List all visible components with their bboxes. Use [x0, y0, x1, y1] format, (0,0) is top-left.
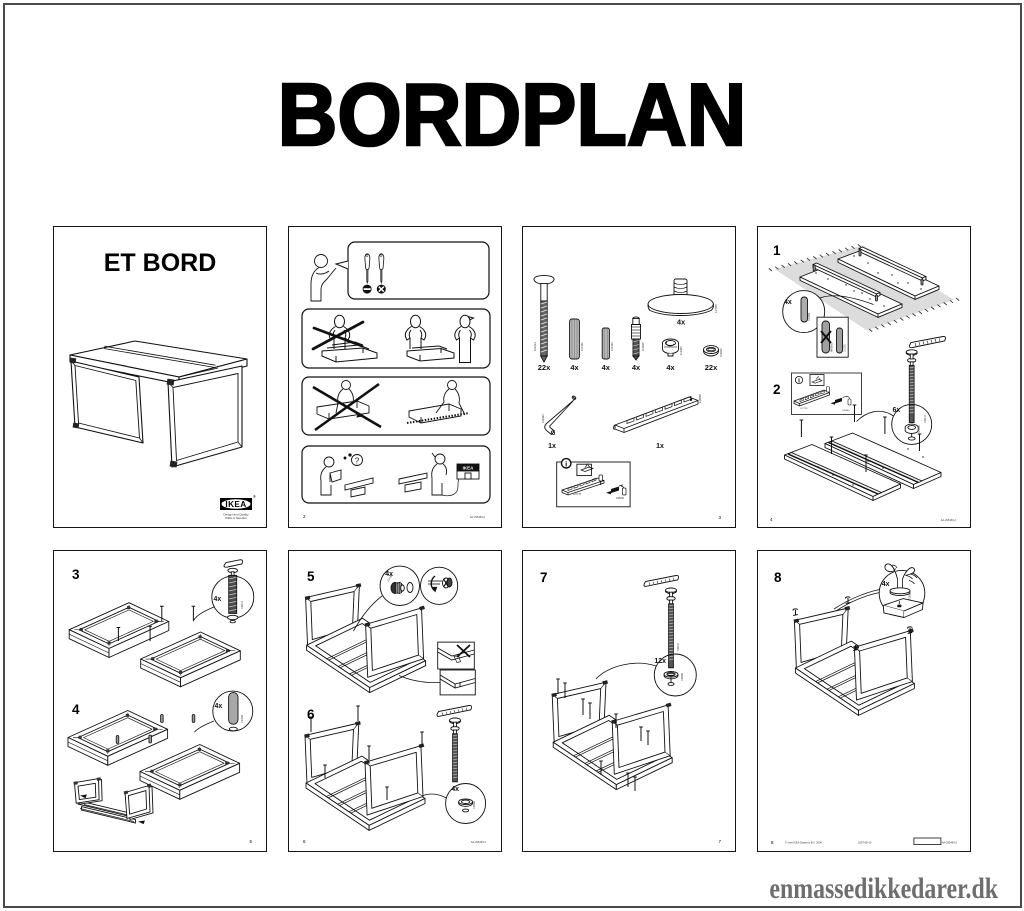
svg-text:108490: 108490 — [541, 414, 545, 423]
svg-text:100092: 100092 — [681, 672, 684, 681]
svg-text:2: 2 — [773, 382, 781, 397]
svg-text:2: 2 — [303, 514, 306, 519]
svg-text:128668: 128668 — [698, 394, 702, 403]
svg-text:8: 8 — [771, 840, 774, 845]
svg-text:®: ® — [253, 494, 256, 499]
svg-text:AA-295469-2: AA-295469-2 — [941, 518, 957, 522]
svg-text:AA-295469-2: AA-295469-2 — [942, 841, 958, 845]
svg-text:4: 4 — [770, 517, 773, 522]
svg-text:6: 6 — [303, 839, 306, 844]
svg-text:100214: 100214 — [677, 642, 680, 651]
svg-text:IKEA: IKEA — [463, 466, 475, 471]
svg-text:4x: 4x — [570, 363, 579, 372]
svg-text:4x: 4x — [666, 363, 675, 372]
svg-text:108490: 108490 — [842, 410, 850, 412]
svg-text:7: 7 — [718, 839, 721, 844]
svg-text:101340: 101340 — [610, 342, 614, 351]
svg-text:100214: 100214 — [533, 342, 537, 351]
svg-text:22x: 22x — [705, 363, 718, 372]
svg-text:101350: 101350 — [580, 342, 584, 351]
svg-text:12x: 12x — [654, 658, 666, 665]
svg-text:2007-08-10: 2007-08-10 — [858, 841, 872, 845]
svg-text:1: 1 — [773, 243, 781, 258]
svg-text:4x: 4x — [451, 786, 459, 793]
svg-text:100092: 100092 — [473, 800, 476, 809]
svg-text:IKEA of Sweden: IKEA of Sweden — [225, 516, 247, 520]
svg-text:112494: 112494 — [918, 425, 921, 433]
svg-text:ET BORD: ET BORD — [104, 249, 217, 277]
svg-text:1x: 1x — [548, 443, 556, 450]
svg-text:© Inter IKEA Systems B.V. 2004: © Inter IKEA Systems B.V. 2004 — [785, 841, 822, 845]
svg-text:WRONG: WRONG — [832, 343, 834, 352]
svg-text:4x: 4x — [632, 363, 641, 372]
svg-text:i: i — [565, 459, 567, 468]
svg-text:101350: 101350 — [808, 312, 811, 321]
svg-text:4x: 4x — [214, 596, 222, 603]
svg-text:4x: 4x — [784, 299, 792, 306]
svg-text:100214: 100214 — [241, 600, 244, 609]
svg-text:101350: 101350 — [845, 344, 847, 352]
svg-text:100092: 100092 — [719, 348, 723, 357]
svg-text:127778: 127778 — [800, 408, 808, 410]
svg-text:127778: 127778 — [573, 493, 582, 496]
svg-text:112494: 112494 — [679, 346, 683, 355]
svg-text:6x: 6x — [893, 407, 901, 414]
svg-text:5: 5 — [249, 839, 252, 844]
svg-text:108490: 108490 — [616, 497, 625, 500]
svg-text:127859: 127859 — [909, 592, 912, 601]
svg-text:IKEA: IKEA — [225, 500, 246, 509]
svg-text:4x: 4x — [882, 581, 890, 588]
svg-text:8: 8 — [774, 570, 782, 585]
svg-text:3: 3 — [718, 515, 721, 520]
svg-text:4x: 4x — [215, 703, 223, 710]
svg-text:100214: 100214 — [924, 414, 927, 423]
svg-text:AA-295469-2: AA-295469-2 — [471, 840, 487, 844]
svg-text:110630: 110630 — [641, 342, 645, 351]
svg-text:127859: 127859 — [714, 304, 718, 313]
svg-text:?: ? — [355, 457, 360, 466]
svg-text:i: i — [798, 378, 800, 385]
svg-text:22x: 22x — [538, 363, 551, 372]
svg-text:4: 4 — [72, 702, 80, 717]
svg-text:7: 7 — [540, 570, 548, 585]
svg-text:4x: 4x — [602, 363, 611, 372]
svg-text:AA-295469-2: AA-295469-2 — [470, 515, 486, 519]
svg-text:3: 3 — [72, 567, 80, 582]
svg-text:101350: 101350 — [241, 714, 244, 723]
svg-text:1x: 1x — [656, 443, 664, 450]
svg-text:4x: 4x — [677, 318, 686, 327]
svg-text:5: 5 — [307, 569, 315, 584]
